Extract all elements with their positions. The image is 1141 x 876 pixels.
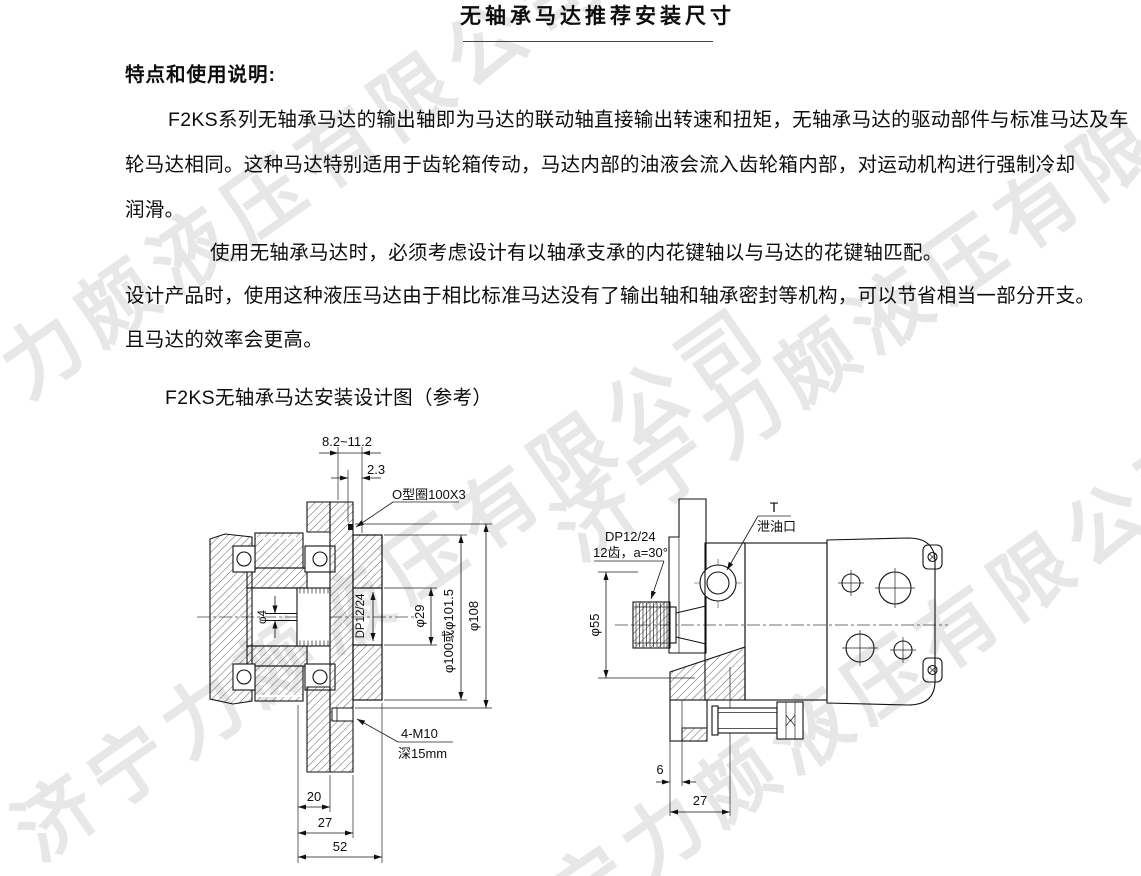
- paragraph-line: 轮马达相同。这种马达特别适用于齿轮箱传动，马达内部的油液会流入齿轮箱内部，对运动…: [125, 152, 1075, 178]
- end-face-ports: [838, 568, 916, 666]
- label-port-letter: T: [770, 499, 779, 515]
- paragraph-line: F2KS系列无轴承马达的输出轴即为马达的联动轴直接输出转速和扭矩，无轴承马达的驱…: [168, 107, 1129, 133]
- page-title: 无轴承马达推荐安装尺寸: [460, 4, 720, 30]
- label-tap-line1: 4-M10: [401, 726, 438, 741]
- dim-label-oring-gap: 2.3: [367, 462, 385, 477]
- dim-label-bore: φ29: [412, 605, 427, 628]
- dim-label-shaft: φ55: [590, 614, 602, 637]
- document-page: 济宁力颇液压有限公司 济宁力颇液压有限公司 济宁力颇液压有限公司 济宁力颇液压有…: [0, 0, 1141, 876]
- left-figure-cross-section: 8.2~11.2 2.3 O型圈100X3 φ4 DP12/24 φ29: [195, 420, 505, 876]
- paragraph-line: 使用无轴承马达时，必须考虑设计有以轴承支承的内花键轴以与马达的花键轴匹配。: [210, 240, 943, 266]
- dim-label-52: 52: [333, 839, 347, 854]
- paragraph-line: 润滑。: [125, 197, 184, 223]
- spline-coupling: [297, 588, 330, 646]
- label-o-ring: O型圈100X3: [392, 487, 466, 502]
- label-port-name: 泄油口: [757, 519, 796, 534]
- dim-label-27: 27: [693, 793, 707, 808]
- dim-label-center-hole: φ4: [257, 609, 269, 623]
- dim-label-20: 20: [307, 789, 321, 804]
- dim-label-6: 6: [656, 762, 663, 777]
- o-ring: [348, 524, 353, 530]
- label-tap-line2: 深15mm: [398, 746, 447, 761]
- paragraph-line: 设计产品时，使用这种液压马达由于相比标准马达没有了输出轴和轴承密封等机构，可以节…: [125, 283, 1095, 309]
- dim-label-pilot: φ100或φ101.5: [441, 589, 456, 673]
- section-heading: 特点和使用说明:: [125, 62, 276, 88]
- dim-label-gap-range: 8.2~11.2: [322, 434, 372, 449]
- dim-label-flange-od: φ108: [466, 601, 481, 631]
- right-figure-side-view: T 泄油口 DP12/24 12齿，a=30° φ55 6 27: [590, 420, 960, 876]
- title-underline: [463, 41, 713, 42]
- mounting-bolt: [712, 702, 803, 739]
- dim-label-spline: DP12/24: [355, 593, 367, 638]
- label-spline-line1: DP12/24: [605, 529, 656, 544]
- paragraph-line: 且马达的效率会更高。: [125, 327, 323, 353]
- right-drawing-dimensions: T 泄油口 DP12/24 12齿，a=30° φ55 6 27: [590, 499, 796, 816]
- label-spline-line2: 12齿，a=30°: [593, 545, 668, 560]
- left-drawing-geometry: [197, 502, 417, 772]
- tapped-hole: [332, 708, 353, 721]
- splined-shaft: [633, 602, 706, 648]
- dim-label-27: 27: [318, 815, 332, 830]
- figure-caption: F2KS无轴承马达安装设计图（参考）: [165, 385, 492, 411]
- drain-port: [694, 559, 742, 608]
